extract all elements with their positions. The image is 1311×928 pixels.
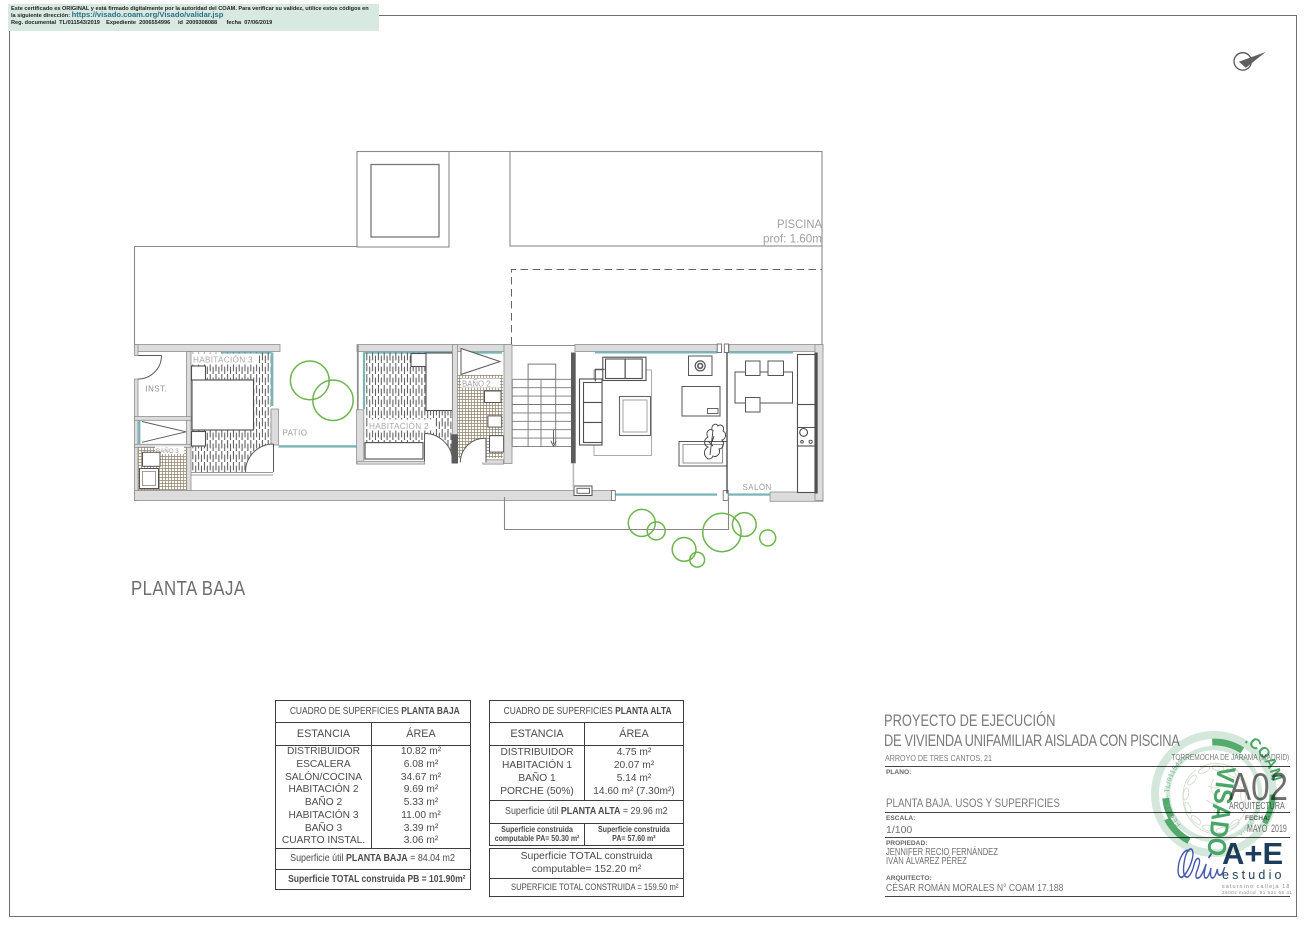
svg-text:.COAM.: .COAM.: [0, 0, 1286, 783]
svg-text:VISADO: VISADO: [1201, 765, 1242, 858]
svg-text:FECHA: - TL/011543/2019 - ELE: FECHA: - TL/011543/2019 - ELE: [0, 0, 1185, 828]
svg-text:VISADO 07/06/2019: VISADO 07/06/2019: [0, 0, 1264, 838]
